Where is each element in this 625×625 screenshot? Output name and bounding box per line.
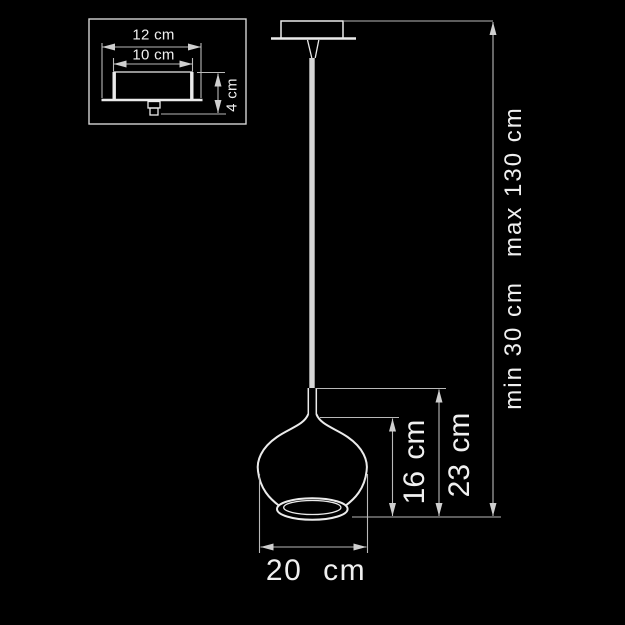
shade-bottom-rim-inner xyxy=(284,501,341,515)
inset-nipple-lower xyxy=(150,108,158,115)
lamp-shade xyxy=(258,388,367,520)
diagram-line-art xyxy=(0,0,625,625)
lamp-dimension-diagram: 12 cm 10 cm 4 cm 16 cm 23 cm min 30 cm m… xyxy=(0,0,625,625)
strain-relief-cone xyxy=(308,40,312,58)
label-inset-height: 4 cm xyxy=(224,78,239,112)
label-inset-outer-width: 12 cm xyxy=(132,28,174,43)
inset-nipple-upper xyxy=(148,102,160,109)
inset-canopy-drawing xyxy=(102,72,203,115)
ceiling-canopy xyxy=(271,21,356,58)
label-inset-inner-width: 10 cm xyxy=(132,48,174,63)
label-suspension-max: max 130 cm xyxy=(502,106,526,257)
label-suspension-min: min 30 cm xyxy=(502,281,526,410)
label-suspension-range: min 30 cm max 130 cm xyxy=(502,106,526,409)
suspension-cord xyxy=(309,58,314,388)
shade-bottom-rim xyxy=(277,498,348,520)
label-shade-width: 20 cm xyxy=(266,556,366,586)
label-shade-height: 16 cm xyxy=(400,420,430,505)
label-fixture-height: 23 cm xyxy=(445,413,475,498)
dim-20cm xyxy=(260,474,368,553)
